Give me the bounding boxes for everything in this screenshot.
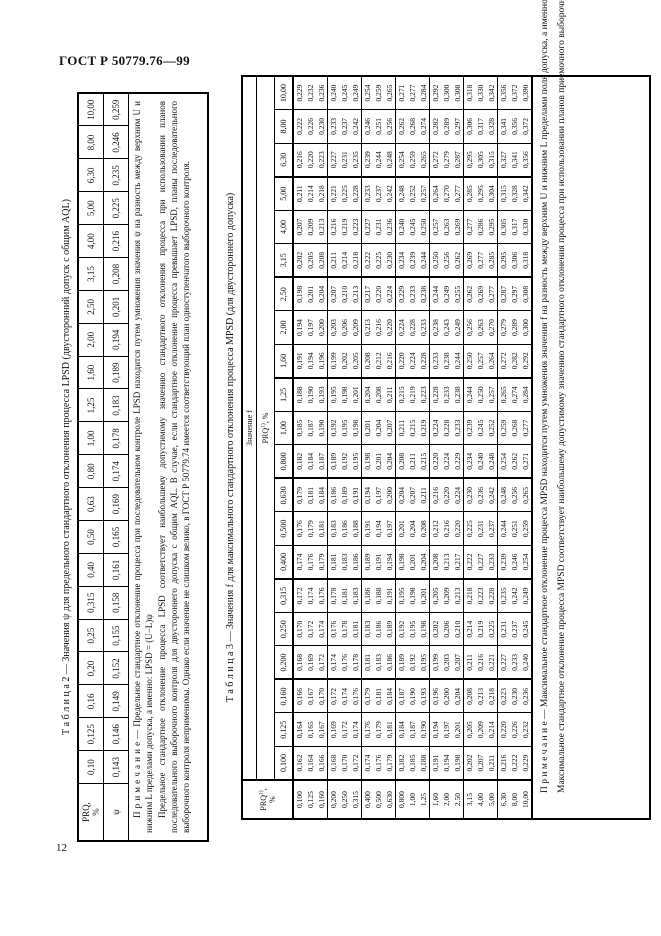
table3-f-value: 0,202 [339,344,350,378]
table3-f-value: 0,179 [362,679,374,713]
table3-f-value: 0,174 [305,579,316,613]
table3-f-value: 0,174 [362,746,374,780]
table2: PRQ,%0,100,1250,160,200,250,3150,400,500… [77,92,209,842]
table2-psi-value: 0,201 [104,290,129,323]
table3-data-row: 4,000,2070,2090,2130,2160,2190,2230,2270… [475,76,486,819]
table3-f-value: 0,194 [384,545,396,579]
table3-f-value: 0,195 [328,378,340,412]
table2-prq-header: 4,00 [78,225,104,258]
table3-f-value: 0,295 [475,177,486,211]
table3-f-value: 0,259 [407,143,418,177]
table3-f-value: 0,295 [486,210,498,244]
table3-corner-base: PRQ [259,795,268,811]
table3-f-value: 0,179 [305,512,316,546]
table3-f-value: 0,186 [373,612,384,646]
table3-f-value: 0,248 [396,177,408,211]
table3-f-value: 0,181 [384,713,396,747]
table3-f-value: 0,195 [407,612,418,646]
table3-f-value: 0,265 [520,478,532,512]
table3-f-value: 0,201 [350,378,362,412]
table3-f-value: 0,188 [418,746,430,780]
table3-col-header: 0,200 [275,646,294,680]
table3-f-value: 0,250 [430,244,442,278]
table3-f-value: 0,192 [407,646,418,680]
table3-f-value: 0,198 [293,277,305,311]
table3-f-value: 0,209 [350,311,362,345]
table3-f-value: 0,292 [520,344,532,378]
table3-f-value: 0,172 [305,612,316,646]
table3-f-value: 0,176 [305,545,316,579]
table3-f-value: 0,237 [373,177,384,211]
table3-f-value: 0,228 [350,177,362,211]
table3-f-value: 0,227 [498,646,510,680]
table3-f-value: 0,297 [452,110,464,144]
table3-f-value: 0,292 [430,76,442,110]
table3-f-value: 0,190 [305,378,316,412]
table3-f-value: 0,233 [452,411,464,445]
table3-f-value: 0,198 [362,445,374,479]
table3-f-value: 0,225 [486,612,498,646]
page-number: 12 [56,842,67,854]
table3-f-value: 0,271 [396,76,408,110]
table3-row-label: 5,00 [486,780,498,819]
table3-f-value: 0,224 [407,344,418,378]
table3-f-value: 0,178 [350,646,362,680]
table3-f-value: 0,228 [418,344,430,378]
table2-prq-header: 0,16 [78,685,104,718]
table3-row-label: 2,00 [441,780,452,819]
table3-note-row: П р и м е ч а н и е — Максимальное станд… [532,76,650,819]
table3-f-value: 0,262 [396,110,408,144]
table2-prq-header: 0,80 [78,455,104,488]
table3-f-value: 0,213 [316,210,328,244]
table3-f-value: 0,217 [362,277,374,311]
table3-sub-header: PRQ1), % [257,76,275,780]
table3-f-value: 0,179 [384,746,396,780]
table3-col-header: 0,100 [275,746,294,780]
table3-f-value: 0,187 [396,679,408,713]
table3-f-value: 0,207 [452,646,464,680]
table3-f-value: 0,206 [339,311,350,345]
table3-f-value: 0,252 [407,177,418,211]
table3-f-value: 0,211 [328,244,340,278]
table3-f-value: 0,218 [486,679,498,713]
table2-prq-header: 1,25 [78,389,104,422]
table3-f-value: 0,263 [441,210,452,244]
table3-f-value: 0,257 [486,378,498,412]
table3-f-value: 0,207 [328,277,340,311]
table3-f-value: 0,223 [418,378,430,412]
table3-f-value: 0,279 [441,143,452,177]
table3-f-value: 0,200 [441,679,452,713]
table3-f-value: 0,214 [464,612,476,646]
table2-prq-header: 3,15 [78,258,104,291]
table3-f-value: 0,208 [316,244,328,278]
table3-f-value: 0,194 [441,746,452,780]
table2-psi-value: 0,216 [104,225,129,258]
table3-f-value: 0,244 [464,378,476,412]
table3-f-value: 0,248 [486,445,498,479]
table3-f-value: 0,228 [486,579,498,613]
table3-data-row: 0,1000,1620,1640,1660,1680,1700,1720,174… [293,76,305,819]
table3-data-row: 2,000,1940,1970,2000,2030,2060,2090,2130… [441,76,452,819]
table3-f-value: 0,211 [464,646,476,680]
table2-note-paragraph: П р и м е ч а н и е — Предельное стандар… [131,101,156,833]
table3-f-value: 0,213 [452,579,464,613]
table3-f-value: 0,176 [362,713,374,747]
table2-prq-header: 0,125 [78,718,104,751]
table2-psi-label: ψ [104,784,129,842]
table3-f-value: 0,208 [396,445,408,479]
table2-psi-value: 0,169 [104,488,129,521]
table3-f-value: 0,201 [305,277,316,311]
table3-f-value: 0,259 [520,512,532,546]
table3-note-cell: П р и м е ч а н и е — Максимальное станд… [532,76,650,819]
table3-f-value: 0,202 [464,746,476,780]
table3-col-header: 0,125 [275,713,294,747]
table3-f-value: 0,308 [452,76,464,110]
table3-f-value: 0,250 [418,210,430,244]
table3-row-label: 1,60 [430,780,442,819]
table3-header-row-3: 0,1000,1250,1600,2000,2500,3150,4000,500… [275,76,294,819]
table3-f-value: 0,305 [498,210,510,244]
table3-f-value: 0,256 [441,244,452,278]
table2-prq-header: 2,00 [78,323,104,356]
table3-f-value: 0,201 [396,512,408,546]
table3-f-value: 0,197 [305,311,316,345]
table3-f-value: 0,191 [430,746,442,780]
table3-row-label: 1,25 [418,780,430,819]
table3-f-value: 0,217 [452,545,464,579]
table3-f-value: 0,318 [464,76,476,110]
table3-f-value: 0,236 [384,210,396,244]
table3-f-value: 0,222 [509,746,520,780]
table3-corner-cell: PRQ1),% [242,780,293,819]
table3-f-value: 0,274 [509,378,520,412]
table3-f-value: 0,233 [418,311,430,345]
table3-f-value: 0,300 [520,311,532,345]
table3-col-header: 8,00 [275,110,294,144]
table3-f-value: 0,188 [350,512,362,546]
table3-f-value: 0,204 [418,545,430,579]
table3-f-value: 0,205 [350,344,362,378]
table3-f-value: 0,181 [362,646,374,680]
table3-f-value: 0,211 [418,478,430,512]
table3-data-row: 0,1250,1640,1650,1670,1690,1720,1740,176… [305,76,316,819]
table3-row-label: 4,00 [475,780,486,819]
table3-f-value: 0,192 [396,612,408,646]
table3-row-label: 1,00 [407,780,418,819]
table3-f-value: 0,295 [498,244,510,278]
table2-note-paragraph: Предельное стандартное отклонение процес… [156,101,193,833]
table3-f-value: 0,238 [418,277,430,311]
table3-f-value: 0,170 [339,746,350,780]
table3-f-value: 0,167 [305,679,316,713]
table3-f-value: 0,169 [305,646,316,680]
table3-f-value: 0,190 [407,679,418,713]
table3-f-value: 0,315 [498,177,510,211]
table3-f-value: 0,181 [339,579,350,613]
table3-f-value: 0,295 [464,143,476,177]
table3-f-value: 0,191 [350,478,362,512]
table3-f-value: 0,207 [407,478,418,512]
table3-f-value: 0,277 [407,76,418,110]
table3-f-value: 0,185 [293,411,305,445]
table3-f-value: 0,256 [464,311,476,345]
table3-f-value: 0,174 [316,612,328,646]
table3-f-value: 0,231 [498,612,510,646]
table3-f-value: 0,191 [384,579,396,613]
table3-col-header: 1,25 [275,378,294,412]
table3-f-value: 0,257 [430,210,442,244]
table3-f-value: 0,204 [362,378,374,412]
table3-f-value: 0,242 [384,177,396,211]
table3-f-value: 0,297 [509,277,520,311]
table3-f-value: 0,390 [520,76,532,110]
table3-f-value: 0,201 [407,545,418,579]
table3-f-value: 0,165 [305,713,316,747]
table3-col-header: 0,160 [275,679,294,713]
table3-row-label: 0,125 [305,780,316,819]
table2-prq-header: 0,63 [78,488,104,521]
table2-psi-value: 0,165 [104,521,129,554]
table3-f-value: 0,228 [441,411,452,445]
table3-f-value: 0,328 [509,177,520,211]
table3-f-value: 0,221 [486,646,498,680]
table3-f-value: 0,193 [418,679,430,713]
table3-col-header: 1,00 [275,411,294,445]
table3-f-value: 0,170 [316,679,328,713]
table3-f-value: 0,184 [384,679,396,713]
table2-note-row: П р и м е ч а н и е — Предельное стандар… [129,93,209,841]
table3-f-value: 0,220 [441,478,452,512]
table3-f-value: 0,232 [520,713,532,747]
table3-f-value: 0,194 [305,344,316,378]
table3-f-value: 0,238 [452,378,464,412]
table3-f-value: 0,188 [293,378,305,412]
table3-note-paragraph: П р и м е ч а н и е — Максимальное станд… [537,86,554,809]
table2-psi-value: 0,235 [104,159,129,192]
table3-f-value: 0,249 [441,277,452,311]
table3-f-value: 0,287 [452,143,464,177]
table3-f-value: 0,186 [339,512,350,546]
table3-f-value: 0,300 [441,76,452,110]
table3-f-value: 0,254 [362,76,374,110]
table3-f-value: 0,327 [498,143,510,177]
table3-f-value: 0,229 [293,76,305,110]
table3-row-label: 0,200 [328,780,340,819]
table3-f-value: 0,223 [316,143,328,177]
table3-f-value: 0,178 [328,579,340,613]
table3-f-value: 0,203 [328,311,340,345]
table3-f-value: 0,205 [430,579,442,613]
table3-col-header: 0,800 [275,445,294,479]
table3-f-value: 0,212 [430,512,442,546]
table3-f-value: 0,179 [293,478,305,512]
table3-f-value: 0,208 [362,344,374,378]
table3-f-value: 0,208 [464,679,476,713]
table3-f-value: 0,174 [339,679,350,713]
table3-f-value: 0,270 [441,177,452,211]
table3-corner-line1: PRQ1), [259,781,268,818]
table3-f-value: 0,277 [486,277,498,311]
table3-col-header: 1,60 [275,344,294,378]
table3-f-value: 0,257 [418,177,430,211]
table3-f-value: 0,220 [452,512,464,546]
table3-f-value: 0,231 [475,512,486,546]
table3-f-value: 0,220 [373,277,384,311]
table3-row-label: 0,630 [384,780,396,819]
table3-f-value: 0,230 [464,478,476,512]
table3-f-value: 0,189 [396,646,408,680]
table2-note-cell: П р и м е ч а н и е — Предельное стандар… [129,93,209,841]
table3-f-value: 0,216 [293,143,305,177]
table3-f-value: 0,197 [373,478,384,512]
table3-f-value: 0,244 [498,512,510,546]
table2-corner-line1: PRQ, [81,784,91,840]
table3-row-label: 10,00 [520,780,532,819]
table3-f-value: 0,223 [350,210,362,244]
table3-f-value: 0,277 [452,177,464,211]
table2-prq-header: 5,00 [78,192,104,225]
table3-data-row: 10,000,2290,2320,2360,2400,2450,2490,254… [520,76,532,819]
table3-f-value: 0,218 [350,244,362,278]
table3-f-value: 0,244 [373,143,384,177]
table3-f-value: 0,265 [384,76,396,110]
table3-f-value: 0,183 [328,512,340,546]
table3-f-value: 0,187 [316,445,328,479]
table3-f-value: 0,239 [464,411,476,445]
table3-f-value: 0,194 [293,311,305,345]
table3-f-value: 0,216 [441,512,452,546]
table3-f-value: 0,164 [293,713,305,747]
table2-psi-value: 0,194 [104,323,129,356]
table3-f-value: 0,245 [475,411,486,445]
table2-header-row: PRQ,%0,100,1250,160,200,250,3150,400,500… [78,93,104,841]
table3-f-value: 0,164 [305,746,316,780]
table3-title: Т а б л и ц а 3 — Значения f для максима… [225,75,236,820]
table3-f-value: 0,194 [430,713,442,747]
table3-f-value: 0,372 [520,110,532,144]
table3-col-header: 0,500 [275,512,294,546]
table3-f-value: 0,182 [396,746,408,780]
table3-f-value: 0,219 [418,411,430,445]
table3-col-header: 4,00 [275,210,294,244]
table3-f-value: 0,229 [452,445,464,479]
table3-f-value: 0,277 [520,411,532,445]
table3-f-value: 0,242 [486,478,498,512]
table3-f-value: 0,179 [316,545,328,579]
table3-f-value: 0,181 [316,512,328,546]
table3-f-value: 0,216 [475,646,486,680]
table2-prq-header: 1,60 [78,356,104,389]
table3-f-value: 0,224 [396,311,408,345]
table3-f-value: 0,223 [475,579,486,613]
table3-f-value: 0,222 [362,244,374,278]
table3-f-value: 0,176 [316,579,328,613]
table3-f-value: 0,304 [486,177,498,211]
table2-psi-value: 0,259 [104,93,129,126]
table3-f-value: 0,198 [350,411,362,445]
table3-f-value: 0,213 [350,277,362,311]
table3-f-value: 0,231 [373,210,384,244]
table3-col-header: 5,00 [275,177,294,211]
table3-f-value: 0,226 [305,110,316,144]
table3-f-value: 0,287 [498,277,510,311]
table3-f-value: 0,330 [520,210,532,244]
table3-f-value: 0,213 [475,679,486,713]
table3-f-value: 0,254 [396,143,408,177]
table3-f-value: 0,268 [509,411,520,445]
table3-f-value: 0,265 [498,378,510,412]
table3-data-row: 0,2500,1700,1720,1740,1760,1780,1810,183… [339,76,350,819]
table3-f-value: 0,269 [464,244,476,278]
table3-f-value: 0,279 [498,311,510,345]
table3-row-label: 3,15 [464,780,476,819]
table3-f-value: 0,227 [328,143,340,177]
table3-f-value: 0,244 [418,244,430,278]
table3-f-value: 0,231 [339,143,350,177]
table3-f-value: 0,284 [418,76,430,110]
table3-f-value: 0,187 [305,411,316,445]
table3-f-value: 0,341 [509,143,520,177]
table3-row-label: 0,100 [293,780,305,819]
table3-f-value: 0,257 [475,344,486,378]
table3-subheader-sup: 1) [260,423,266,428]
table3-col-header: 0,630 [275,478,294,512]
table2-prq-header: 0,50 [78,521,104,554]
table3-f-value: 0,265 [418,143,430,177]
table3-f-value: 0,274 [418,110,430,144]
table3-f-value: 0,342 [486,76,498,110]
table3-f-value: 0,211 [407,445,418,479]
table3-f-value: 0,194 [362,478,374,512]
table3-f-value: 0,236 [520,679,532,713]
table2-corner-line2: % [91,784,101,840]
table3-f-value: 0,233 [407,277,418,311]
table3-f-value: 0,174 [350,713,362,747]
table3-f-value: 0,190 [316,411,328,445]
table3-f-value: 0,254 [498,445,510,479]
table3-f-value: 0,233 [441,378,452,412]
table3-f-value: 0,181 [328,545,340,579]
table3-f-value: 0,186 [362,579,374,613]
table3-f-value: 0,272 [430,143,442,177]
table3-f-value: 0,183 [362,612,374,646]
document-page: ГОСТ Р 50779.76—99 12 Т а б л и ц а 2 — … [0,0,661,936]
table3-f-value: 0,178 [339,612,350,646]
document-header: ГОСТ Р 50779.76—99 [59,53,190,69]
table3-row-label: 2,50 [452,780,464,819]
table3-f-value: 0,237 [339,110,350,144]
table3-f-value: 0,233 [430,344,442,378]
table3-f-value: 0,191 [362,512,374,546]
table3-f-value: 0,239 [362,143,374,177]
table3-f-value: 0,306 [509,244,520,278]
table3-f-value: 0,330 [475,76,486,110]
table3-f-value: 0,341 [498,110,510,144]
table3-f-value: 0,233 [486,545,498,579]
table3-f-value: 0,259 [498,411,510,445]
table3: PRQ1),%Значение fPRQ1), %0,1000,1250,160… [241,75,651,820]
table3-f-value: 0,233 [509,646,520,680]
table3-f-value: 0,242 [509,579,520,613]
table3-f-value: 0,184 [316,478,328,512]
table3-f-value: 0,308 [520,277,532,311]
table3-f-value: 0,305 [475,143,486,177]
table3-f-value: 0,262 [464,277,476,311]
table3-f-value: 0,214 [305,177,316,211]
